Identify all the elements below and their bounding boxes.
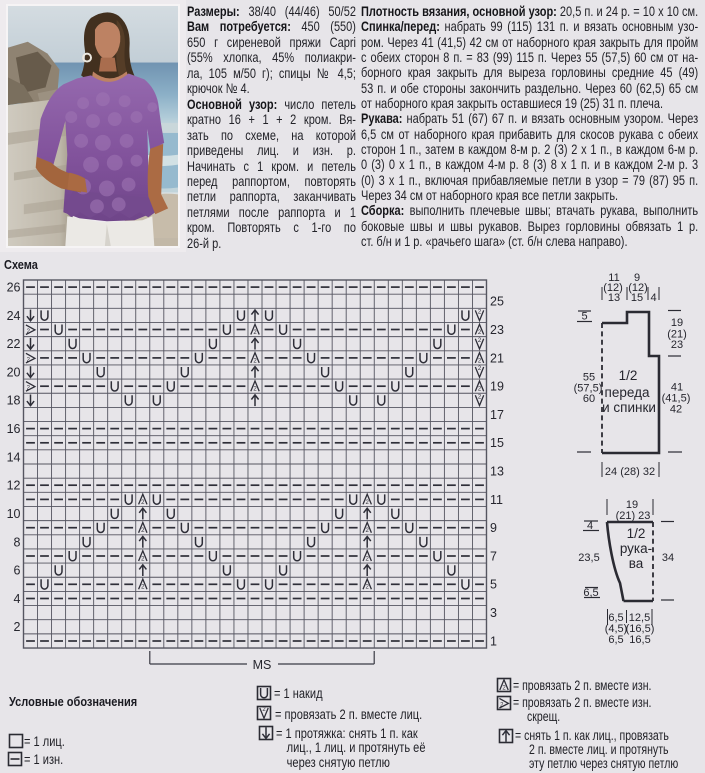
svg-text:24 (28) 32: 24 (28) 32 [605, 466, 655, 478]
svg-text:4: 4 [587, 520, 593, 532]
svg-text:23: 23 [671, 339, 683, 351]
svg-text:2: 2 [141, 585, 145, 591]
svg-text:2: 2 [141, 556, 145, 562]
svg-text:10: 10 [7, 507, 21, 521]
svg-text:2: 2 [253, 330, 257, 336]
svg-text:18: 18 [7, 394, 21, 408]
svg-text:2: 2 [366, 500, 370, 506]
svg-text:6,5: 6,5 [608, 634, 623, 646]
svg-text:19: 19 [490, 380, 504, 394]
svg-text:2: 2 [366, 528, 370, 534]
svg-text:2: 2 [502, 685, 506, 691]
svg-text:5: 5 [581, 311, 587, 323]
svg-text:16: 16 [7, 422, 21, 436]
svg-text:1/2: 1/2 [619, 368, 638, 383]
svg-text:2: 2 [478, 330, 482, 336]
svg-text:42: 42 [670, 404, 682, 416]
svg-text:и спинки: и спинки [602, 400, 656, 415]
svg-text:12: 12 [7, 479, 21, 493]
svg-text:(21) 23: (21) 23 [616, 510, 651, 522]
svg-text:26: 26 [7, 281, 21, 295]
svg-text:60: 60 [583, 393, 595, 405]
svg-text:13: 13 [490, 465, 504, 479]
svg-text:1/2: 1/2 [627, 526, 646, 541]
svg-text:2: 2 [141, 528, 145, 534]
svg-text:20: 20 [7, 365, 21, 379]
svg-text:22: 22 [7, 337, 21, 351]
svg-text:9: 9 [490, 521, 497, 535]
svg-text:3: 3 [490, 606, 497, 620]
svg-text:8: 8 [14, 535, 21, 549]
svg-text:2: 2 [478, 387, 482, 393]
svg-text:11: 11 [490, 493, 503, 507]
svg-text:2: 2 [366, 585, 370, 591]
svg-text:23: 23 [490, 323, 504, 337]
svg-text:13: 13 [608, 292, 620, 304]
svg-text:2: 2 [253, 358, 257, 364]
svg-text:34: 34 [662, 552, 674, 564]
svg-text:6: 6 [14, 564, 21, 578]
svg-text:7: 7 [490, 549, 497, 563]
svg-text:ва: ва [629, 556, 644, 571]
svg-text:14: 14 [7, 450, 21, 464]
svg-text:MS: MS [253, 658, 272, 672]
svg-text:19: 19 [671, 317, 683, 329]
svg-text:16,5: 16,5 [629, 634, 650, 646]
svg-text:24: 24 [7, 309, 21, 323]
svg-text:2: 2 [141, 500, 145, 506]
svg-text:2: 2 [366, 556, 370, 562]
svg-text:17: 17 [490, 408, 504, 422]
svg-text:2: 2 [478, 358, 482, 364]
svg-text:23,5: 23,5 [578, 552, 599, 564]
svg-text:2: 2 [14, 620, 21, 634]
svg-text:2: 2 [253, 387, 257, 393]
svg-text:рука-: рука- [620, 541, 652, 556]
svg-text:4: 4 [650, 292, 656, 304]
svg-text:15: 15 [631, 292, 643, 304]
svg-text:25: 25 [490, 295, 504, 309]
svg-text:4: 4 [14, 592, 21, 606]
svg-text:6,5: 6,5 [583, 587, 598, 599]
svg-text:5: 5 [490, 578, 497, 592]
svg-text:1: 1 [490, 634, 497, 648]
svg-text:переда: переда [605, 385, 650, 400]
svg-text:15: 15 [490, 436, 504, 450]
svg-text:21: 21 [490, 351, 504, 365]
